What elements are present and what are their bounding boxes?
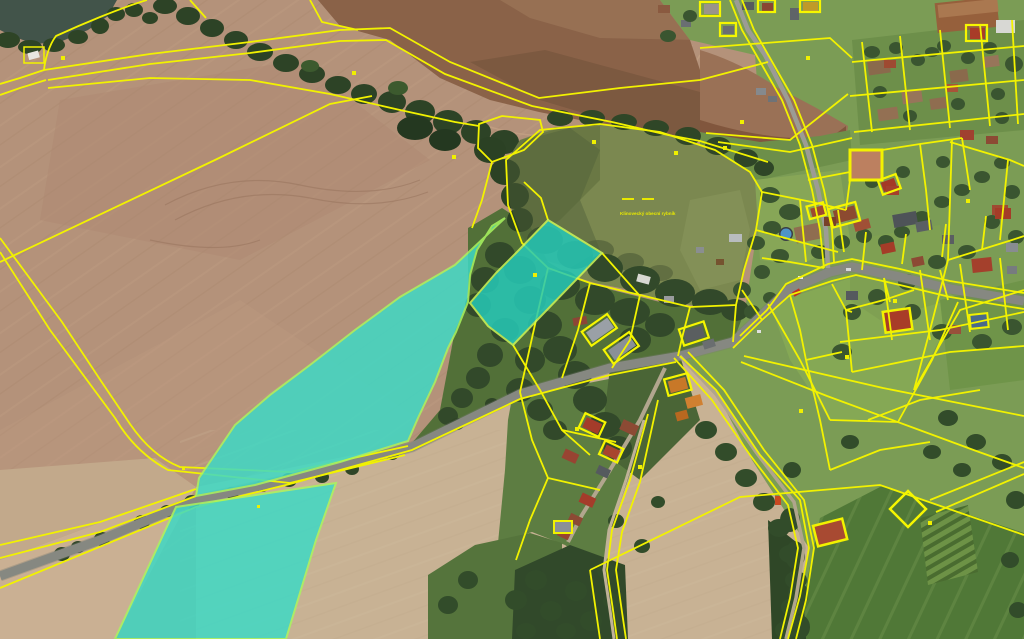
- svg-text:Klinovecký obecní rybník: Klinovecký obecní rybník: [620, 211, 676, 216]
